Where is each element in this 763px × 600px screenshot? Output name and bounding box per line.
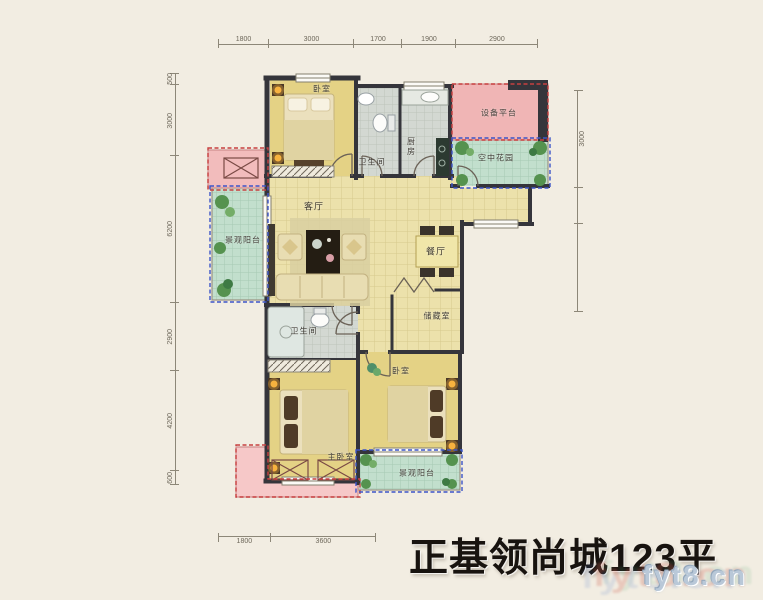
dimension-segment: 4200 — [163, 371, 176, 470]
coffee-table — [306, 230, 340, 274]
dimension-segment: 1700 — [354, 32, 402, 45]
room-label-sky-garden: 空中花园 — [478, 153, 514, 164]
dimension-segment: 1900 — [402, 32, 456, 45]
room-label-kitchen: 厨房 — [406, 137, 417, 157]
pillow — [430, 416, 443, 438]
toilet-tank — [388, 115, 395, 131]
floorplan-page: 卧室 卫生间 厨房 设备平台 空中花园 景观阳台 客厅 餐厅 储藏室 卫生间 主… — [0, 0, 763, 600]
stove-icon — [436, 138, 449, 176]
pillow — [311, 98, 330, 111]
lamp-icon — [275, 87, 282, 94]
dimension-segment — [577, 224, 590, 312]
room-label-bathroom-bottom: 卫生间 — [291, 326, 318, 337]
pillow — [284, 424, 298, 448]
dimension-value: 2900 — [489, 36, 505, 43]
dimension-value: 3000 — [579, 131, 586, 147]
dimension-chain-bottom: 18003600 — [218, 536, 376, 549]
dimension-value: 1900 — [421, 36, 437, 43]
room-label-bathroom-top: 卫生间 — [359, 157, 386, 168]
room-floors — [208, 78, 548, 497]
pillow — [430, 390, 443, 412]
dimension-value: 4200 — [167, 413, 174, 429]
tv-cabinet — [268, 224, 275, 296]
room-label-storage: 储藏室 — [424, 311, 451, 322]
room-label-living-room: 客厅 — [304, 200, 324, 213]
washbasin-icon — [358, 93, 374, 105]
dimension-segment — [577, 188, 590, 224]
room-label-bedroom-top: 卧室 — [313, 84, 331, 95]
sink-icon — [421, 92, 439, 102]
room-label-balcony-left: 景观阳台 — [225, 235, 261, 246]
dimension-value: 3000 — [304, 36, 320, 43]
dimension-value: 1800 — [236, 36, 252, 43]
dimension-segment: 500 — [163, 73, 176, 85]
blanket — [302, 390, 348, 454]
dimension-segment: 3000 — [577, 90, 590, 188]
room-label-bedroom-bottom: 卧室 — [392, 366, 410, 377]
lamp-icon — [449, 443, 456, 450]
dimension-segment: 6200 — [163, 156, 176, 303]
dimension-value: 3600 — [316, 538, 332, 545]
dimension-segment: 3000 — [163, 85, 176, 156]
dimension-value: 3000 — [167, 113, 174, 129]
chair — [439, 226, 454, 235]
dimension-segment: 1800 — [218, 536, 271, 549]
dimension-value: 1800 — [237, 538, 253, 545]
dimension-value: 500 — [167, 73, 174, 85]
dimension-segment: 2900 — [456, 32, 538, 45]
dimension-segment: 2900 — [163, 303, 176, 372]
watermark-text: fyt8.cn — [643, 560, 747, 592]
floorplan-drawing — [0, 0, 763, 600]
room-label-dining-room: 餐厅 — [426, 245, 446, 258]
wall-block — [538, 80, 548, 142]
dimension-segment: 3000 — [269, 32, 354, 45]
dimension-value: 1700 — [370, 36, 386, 43]
lamp-icon — [275, 155, 282, 162]
room-label-equipment-platform: 设备平台 — [481, 108, 517, 119]
lamp-icon — [449, 381, 456, 388]
chair — [439, 268, 454, 277]
dimension-value: 2900 — [167, 329, 174, 345]
pillow — [288, 98, 307, 111]
dimension-chain-top: 18003000170019002900 — [218, 32, 538, 45]
room-label-balcony-bottom: 景观阳台 — [399, 468, 435, 479]
toilet-icon — [373, 114, 387, 132]
watermark: fyt8.cn fyt8.cn — [537, 554, 757, 600]
dimension-segment: 600 — [163, 471, 176, 485]
hall-ext-floor — [452, 188, 530, 224]
pillow — [284, 396, 298, 420]
dimension-value: 600 — [167, 472, 174, 484]
blanket — [388, 386, 428, 442]
bed-bench — [294, 160, 324, 166]
dimension-value: 6200 — [167, 221, 174, 237]
dimension-chain-left: 5003000620029004200600 — [163, 73, 176, 485]
chair — [420, 268, 435, 277]
dimension-segment: 3600 — [271, 536, 376, 549]
ac-platform-left-floor — [208, 150, 266, 188]
dimension-chain-right: 3000 — [577, 90, 590, 312]
dimension-segment: 1800 — [218, 32, 269, 45]
lamp-icon — [271, 381, 278, 388]
blanket — [284, 120, 334, 160]
chair — [420, 226, 435, 235]
room-label-master-bedroom: 主卧室 — [328, 452, 355, 463]
